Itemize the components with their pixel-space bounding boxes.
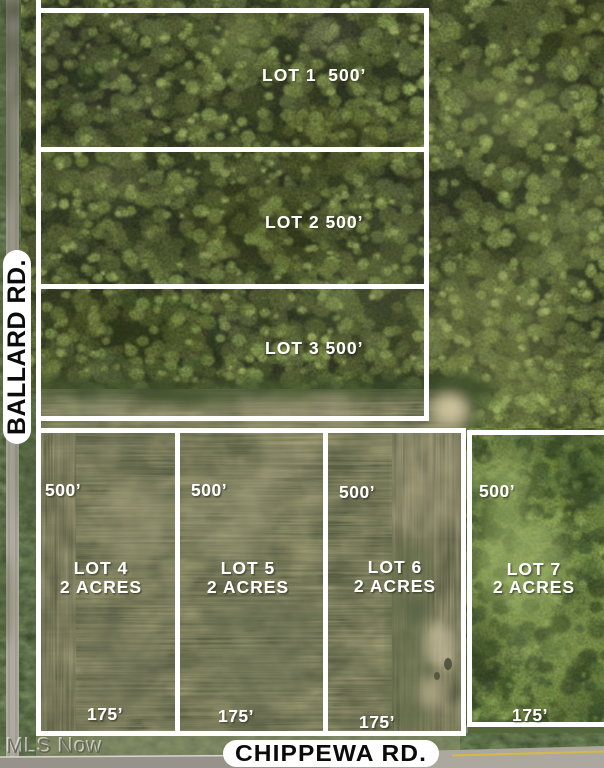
svg-text:500’: 500’ <box>339 482 375 502</box>
svg-text:175’: 175’ <box>87 704 123 724</box>
svg-text:500’: 500’ <box>479 481 515 501</box>
svg-text:500’: 500’ <box>191 480 227 500</box>
svg-text:500’: 500’ <box>45 480 81 500</box>
svg-text:LOT 1 500’: LOT 1 500’ <box>262 65 366 85</box>
svg-text:2 ACRES: 2 ACRES <box>493 577 575 597</box>
svg-text:LOT 4: LOT 4 <box>74 558 129 578</box>
svg-text:2 ACRES: 2 ACRES <box>207 577 289 597</box>
svg-text:2 ACRES: 2 ACRES <box>60 577 142 597</box>
svg-text:LOT 5: LOT 5 <box>221 558 276 578</box>
svg-text:LOT 3 500’: LOT 3 500’ <box>265 338 364 358</box>
svg-text:CHIPPEWA RD.: CHIPPEWA RD. <box>235 740 427 766</box>
svg-text:175’: 175’ <box>512 705 548 725</box>
svg-text:BALLARD RD.: BALLARD RD. <box>3 259 31 435</box>
svg-text:175’: 175’ <box>218 706 254 726</box>
svg-text:LOT 7: LOT 7 <box>507 559 562 579</box>
svg-text:LOT 2 500’: LOT 2 500’ <box>265 212 364 232</box>
svg-text:175’: 175’ <box>359 712 395 732</box>
svg-text:LOT 6: LOT 6 <box>368 557 423 577</box>
svg-text:MLS Now: MLS Now <box>7 734 104 758</box>
svg-text:2 ACRES: 2 ACRES <box>354 576 436 596</box>
